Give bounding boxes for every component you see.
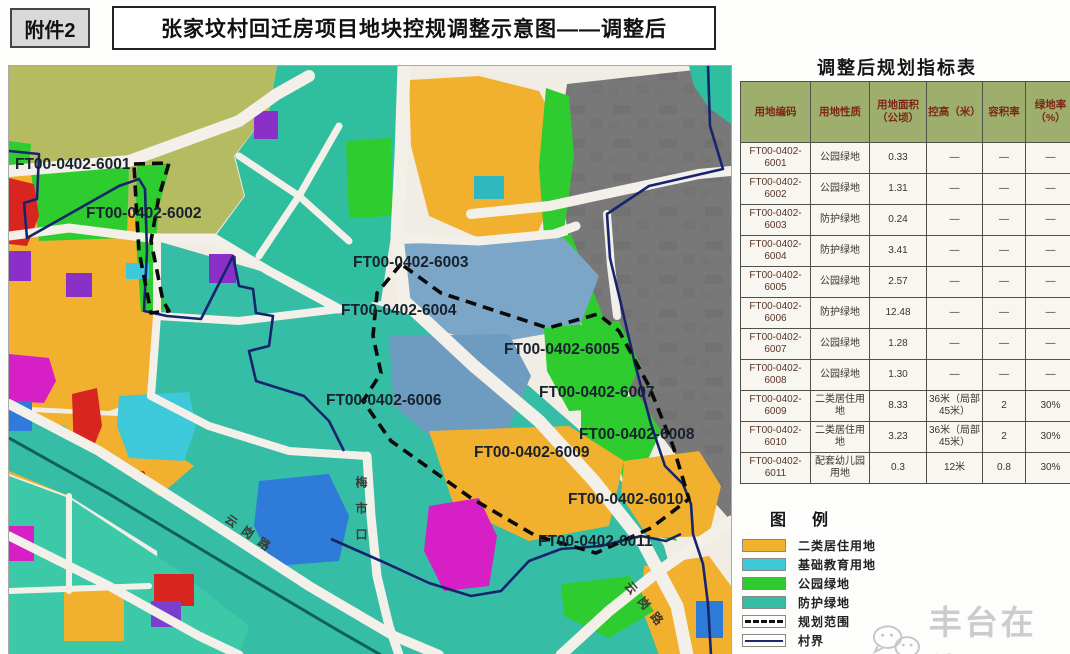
- cell-use: 防护绿地: [811, 205, 870, 236]
- cell-area: 0.24: [870, 205, 927, 236]
- legend-title: 图例: [770, 506, 972, 530]
- cell-far: —: [983, 236, 1026, 267]
- table-row: FT00-0402- 6005公园绿地2.57———: [741, 267, 1070, 298]
- legend-item: 二类居住用地: [742, 538, 972, 552]
- table-row: FT00-0402- 6011配套幼儿园用地0.312米0.830%: [741, 453, 1070, 484]
- table-header-row: 用地编码 用地性质 用地面积（公顷） 控高（米） 容积率 绿地率（%）: [741, 82, 1070, 143]
- cell-height: —: [927, 174, 983, 205]
- watermark-text: 丰台在线: [929, 596, 1070, 654]
- parcel-teal-square: [474, 176, 504, 199]
- cell-height: —: [927, 329, 983, 360]
- cell-code: FT00-0402- 6002: [741, 174, 811, 205]
- cell-code: FT00-0402- 6001: [741, 143, 811, 174]
- col-header-use: 用地性质: [811, 82, 870, 143]
- parcel-orange-sw: [64, 588, 124, 641]
- table-row: FT00-0402- 6002公园绿地1.31———: [741, 174, 1070, 205]
- cell-green: —: [1026, 329, 1070, 360]
- cell-green: —: [1026, 360, 1070, 391]
- parcel-purple-2: [9, 251, 31, 281]
- cell-height: —: [927, 205, 983, 236]
- legend-item-label: 村界: [798, 632, 824, 649]
- cell-area: 12.48: [870, 298, 927, 329]
- cell-use: 公园绿地: [811, 329, 870, 360]
- cell-height: 12米: [927, 453, 983, 484]
- plot-label-6004: FT00-0402-6004: [341, 302, 457, 319]
- indicator-panel: 调整后规划指标表 用地编码 用地性质 用地面积（公顷） 控高（米） 容积率 绿地…: [732, 48, 1070, 654]
- page: 附件2 张家坟村回迁房项目地块控规调整示意图——调整后: [0, 0, 1070, 654]
- road-label-meishikou: 梅市口: [354, 475, 368, 554]
- plot-label-6007: FT00-0402-6007: [539, 384, 654, 401]
- cell-far: —: [983, 298, 1026, 329]
- parcel-green-center: [346, 138, 393, 218]
- cell-area: 8.33: [870, 391, 927, 422]
- legend-item-label: 防护绿地: [798, 594, 850, 611]
- plot-label-6008: FT00-0402-6008: [579, 426, 695, 443]
- col-header-code: 用地编码: [741, 82, 811, 143]
- parcel-purple-3: [66, 273, 92, 297]
- cell-area: 1.28: [870, 329, 927, 360]
- cell-area: 0.3: [870, 453, 927, 484]
- col-header-green: 绿地率（%）: [1026, 82, 1070, 143]
- cell-code: FT00-0402- 6004: [741, 236, 811, 267]
- plot-label-6011: FT00-0402-6011: [538, 533, 653, 550]
- cell-code: FT00-0402- 6011: [741, 453, 811, 484]
- legend-swatch: [742, 634, 786, 647]
- cell-area: 1.30: [870, 360, 927, 391]
- legend-swatch: [742, 615, 786, 628]
- cell-green: 30%: [1026, 422, 1070, 453]
- col-header-far: 容积率: [983, 82, 1026, 143]
- plot-label-6005: FT00-0402-6005: [504, 341, 620, 358]
- attachment-label: 附件2: [10, 8, 90, 48]
- cell-use: 防护绿地: [811, 236, 870, 267]
- cell-use: 配套幼儿园用地: [811, 453, 870, 484]
- col-header-area: 用地面积（公顷）: [870, 82, 927, 143]
- col-header-height: 控高（米）: [927, 82, 983, 143]
- cell-far: —: [983, 267, 1026, 298]
- cell-area: 1.31: [870, 174, 927, 205]
- watermark: 丰台在线: [868, 596, 1070, 654]
- table-row: FT00-0402- 6010二类居住用地3.2336米（局部45米）230%: [741, 422, 1070, 453]
- cell-green: —: [1026, 236, 1070, 267]
- table-row: FT00-0402- 6008公园绿地1.30———: [741, 360, 1070, 391]
- cell-use: 二类居住用地: [811, 422, 870, 453]
- cell-far: —: [983, 329, 1026, 360]
- cell-use: 二类居住用地: [811, 391, 870, 422]
- legend-item: 基础教育用地: [742, 557, 972, 571]
- planning-map-svg: FT00-0402-6001 FT00-0402-6002 FT00-0402-…: [9, 66, 731, 654]
- cell-green: 30%: [1026, 391, 1070, 422]
- cell-use: 公园绿地: [811, 174, 870, 205]
- table-row: FT00-0402- 6001公园绿地0.33———: [741, 143, 1070, 174]
- table-row: FT00-0402- 6003防护绿地0.24———: [741, 205, 1070, 236]
- cell-height: 36米（局部45米）: [927, 422, 983, 453]
- cell-green: —: [1026, 174, 1070, 205]
- cell-far: —: [983, 143, 1026, 174]
- cell-height: —: [927, 360, 983, 391]
- cell-height: 36米（局部45米）: [927, 391, 983, 422]
- cell-green: —: [1026, 205, 1070, 236]
- cell-far: —: [983, 174, 1026, 205]
- cell-area: 2.57: [870, 267, 927, 298]
- cell-use: 公园绿地: [811, 267, 870, 298]
- cell-height: —: [927, 298, 983, 329]
- legend-swatch: [742, 539, 786, 552]
- cell-far: 2: [983, 391, 1026, 422]
- cell-code: FT00-0402- 6003: [741, 205, 811, 236]
- legend-item-label: 公园绿地: [798, 575, 850, 592]
- legend-swatch: [742, 577, 786, 590]
- cell-green: —: [1026, 143, 1070, 174]
- cell-far: —: [983, 205, 1026, 236]
- cell-use: 公园绿地: [811, 360, 870, 391]
- plot-label-6010: FT00-0402-6010: [568, 491, 683, 508]
- parcel-purple-1: [254, 111, 278, 139]
- cell-use: 公园绿地: [811, 143, 870, 174]
- plot-label-6002: FT00-0402-6002: [86, 205, 201, 222]
- legend-item-label: 二类居住用地: [798, 537, 876, 554]
- cell-green: 30%: [1026, 453, 1070, 484]
- cell-green: —: [1026, 267, 1070, 298]
- legend-item: 公园绿地: [742, 576, 972, 590]
- cell-code: FT00-0402- 6005: [741, 267, 811, 298]
- legend-item-label: 规划范围: [798, 613, 850, 630]
- legend-swatch: [742, 596, 786, 609]
- cell-green: —: [1026, 298, 1070, 329]
- table-row: FT00-0402- 6004防护绿地3.41———: [741, 236, 1070, 267]
- cell-far: 2: [983, 422, 1026, 453]
- cell-code: FT00-0402- 6006: [741, 298, 811, 329]
- cell-height: —: [927, 236, 983, 267]
- page-title: 张家坟村回迁房项目地块控规调整示意图——调整后: [112, 6, 716, 50]
- cell-height: —: [927, 267, 983, 298]
- legend-swatch: [742, 558, 786, 571]
- planning-map: FT00-0402-6001 FT00-0402-6002 FT00-0402-…: [8, 65, 732, 654]
- cell-height: —: [927, 143, 983, 174]
- indicator-table: 用地编码 用地性质 用地面积（公顷） 控高（米） 容积率 绿地率（%） FT00…: [740, 81, 1070, 484]
- plot-label-6009: FT00-0402-6009: [474, 444, 590, 461]
- cell-code: FT00-0402- 6009: [741, 391, 811, 422]
- table-row: FT00-0402- 6007公园绿地1.28———: [741, 329, 1070, 360]
- cell-code: FT00-0402- 6010: [741, 422, 811, 453]
- legend-item-label: 基础教育用地: [798, 556, 876, 573]
- cell-code: FT00-0402- 6007: [741, 329, 811, 360]
- cell-code: FT00-0402- 6008: [741, 360, 811, 391]
- plot-label-6001: FT00-0402-6001: [15, 156, 131, 173]
- plot-label-6003: FT00-0402-6003: [353, 254, 469, 271]
- wechat-icon: [868, 621, 929, 654]
- cell-area: 3.41: [870, 236, 927, 267]
- cell-far: 0.8: [983, 453, 1026, 484]
- table-title: 调整后规划指标表: [732, 54, 1062, 80]
- cell-area: 0.33: [870, 143, 927, 174]
- cell-area: 3.23: [870, 422, 927, 453]
- plot-label-6006: FT00-0402-6006: [326, 392, 442, 409]
- indicator-table-body: FT00-0402- 6001公园绿地0.33———FT00-0402- 600…: [741, 143, 1070, 484]
- table-row: FT00-0402- 6009二类居住用地8.3336米（局部45米）230%: [741, 391, 1070, 422]
- table-row: FT00-0402- 6006防护绿地12.48———: [741, 298, 1070, 329]
- cell-far: —: [983, 360, 1026, 391]
- cell-use: 防护绿地: [811, 298, 870, 329]
